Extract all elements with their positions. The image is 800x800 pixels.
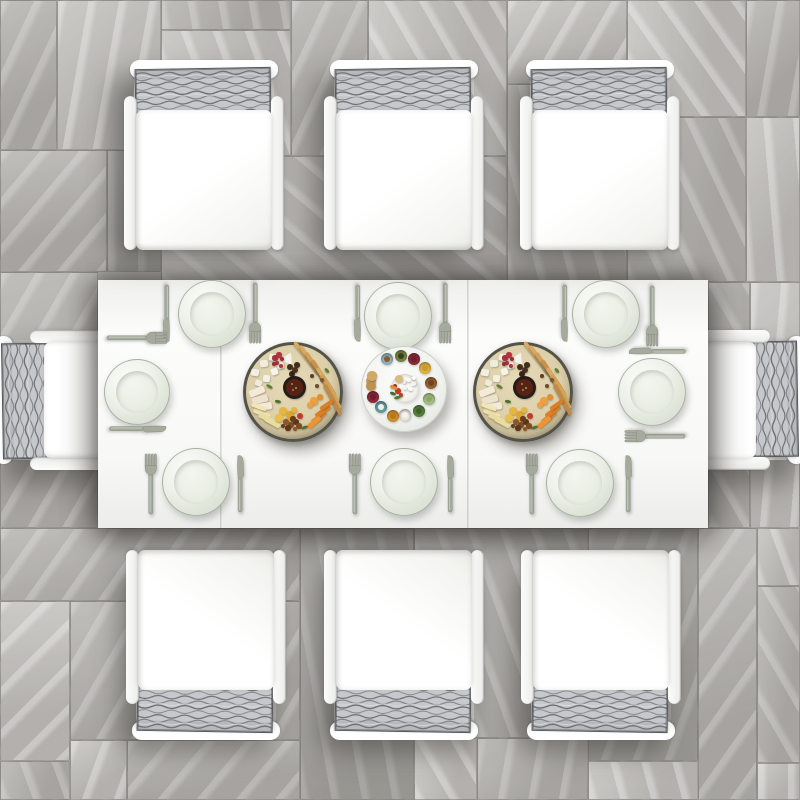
board-food-item bbox=[293, 427, 298, 432]
board-food-item bbox=[290, 416, 295, 421]
board-food-item bbox=[495, 383, 503, 389]
snack-bowl bbox=[419, 362, 432, 375]
board-food-item bbox=[272, 362, 276, 366]
knife bbox=[623, 453, 634, 515]
dinner-plate bbox=[546, 449, 614, 517]
dinner-plate bbox=[370, 448, 438, 516]
snack-bowl bbox=[413, 405, 426, 418]
seat-cushion bbox=[533, 550, 669, 690]
floor-tile bbox=[0, 601, 70, 761]
woven-texture bbox=[336, 683, 471, 732]
armrest-right bbox=[668, 550, 681, 704]
platter-food-item bbox=[366, 381, 376, 391]
board-food-item bbox=[502, 362, 506, 366]
floor-tile bbox=[127, 740, 300, 800]
board-food-item bbox=[537, 402, 543, 408]
snack-bowl bbox=[387, 410, 400, 423]
dinner-plate bbox=[162, 448, 230, 516]
floor-tile bbox=[588, 761, 698, 800]
board-food-item bbox=[540, 374, 544, 378]
seat-cushion bbox=[136, 110, 272, 250]
seat-cushion bbox=[138, 550, 274, 690]
board-food-item bbox=[520, 416, 525, 421]
board-food-item bbox=[250, 368, 259, 376]
floor-tile bbox=[477, 738, 588, 800]
armrest-right bbox=[271, 96, 284, 250]
armrest-right bbox=[273, 550, 286, 704]
snack-bowl bbox=[423, 393, 436, 406]
dish-food-item bbox=[407, 386, 413, 392]
board-food-item bbox=[523, 427, 528, 432]
board-food-item bbox=[285, 425, 290, 430]
fork bbox=[645, 285, 659, 347]
dinner-plate bbox=[364, 282, 432, 350]
floor-tile bbox=[757, 763, 800, 800]
woven-texture bbox=[138, 683, 273, 732]
board-food-item bbox=[275, 399, 281, 403]
dish-food-item bbox=[395, 375, 403, 383]
floor-tile bbox=[0, 150, 107, 272]
snack-bowl bbox=[381, 353, 394, 366]
board-food-item bbox=[550, 378, 554, 382]
board-food-item bbox=[524, 362, 530, 368]
fork bbox=[525, 453, 539, 515]
board-food-item bbox=[265, 383, 273, 389]
seat-cushion bbox=[532, 110, 668, 250]
board-food-item bbox=[275, 414, 282, 421]
seat-cushion bbox=[336, 110, 472, 250]
board-food-item bbox=[515, 425, 520, 430]
board-food-item bbox=[492, 374, 499, 381]
board-food-item bbox=[505, 399, 511, 403]
floor-tile bbox=[414, 738, 477, 800]
board-food-item bbox=[545, 384, 549, 388]
fork bbox=[624, 429, 686, 443]
board-food-item bbox=[307, 402, 313, 408]
board-food-item bbox=[522, 389, 524, 391]
dish-food-item bbox=[410, 382, 416, 387]
board-food-item bbox=[490, 359, 499, 367]
board-food-item bbox=[260, 359, 269, 367]
board-food-item bbox=[297, 413, 303, 419]
floor-tile bbox=[757, 586, 800, 763]
board-food-item bbox=[292, 389, 294, 391]
floor-tile bbox=[698, 528, 757, 800]
fork bbox=[106, 331, 168, 345]
seat-cushion bbox=[336, 550, 472, 690]
board-food-item bbox=[270, 367, 279, 376]
dish-food-item bbox=[403, 386, 408, 391]
snack-bowl bbox=[408, 353, 421, 366]
board-food-item bbox=[500, 367, 509, 376]
woven-texture bbox=[749, 342, 798, 457]
snack-bowl bbox=[395, 350, 408, 363]
table-seam bbox=[467, 280, 469, 528]
floor-tile bbox=[0, 0, 57, 150]
board-food-item bbox=[315, 384, 319, 388]
snack-bowl bbox=[425, 377, 438, 390]
board-food-item bbox=[317, 394, 324, 401]
knife bbox=[106, 424, 168, 435]
outdoor-dining-set-photo bbox=[0, 0, 800, 800]
floor-tile bbox=[161, 0, 291, 30]
board-food-item bbox=[554, 367, 560, 374]
knife bbox=[445, 453, 456, 515]
armrest-right bbox=[471, 96, 484, 250]
board-food-item bbox=[547, 394, 554, 401]
dining-chair-bottom-2 bbox=[324, 548, 484, 740]
charcuterie-board bbox=[473, 342, 573, 442]
dining-chair-top-3 bbox=[520, 60, 680, 252]
knife bbox=[559, 282, 570, 344]
board-food-item bbox=[310, 374, 314, 378]
board-food-item bbox=[505, 414, 512, 421]
floor-tile bbox=[70, 740, 127, 800]
fork bbox=[248, 282, 262, 344]
floor-tile bbox=[746, 117, 800, 282]
dining-chair-top-1 bbox=[124, 60, 284, 252]
center-dish bbox=[391, 374, 419, 402]
dinner-plate bbox=[618, 358, 686, 426]
woven-texture bbox=[533, 683, 668, 732]
dinner-plate bbox=[104, 359, 170, 425]
board-food-item bbox=[291, 407, 297, 413]
board-food-item bbox=[262, 374, 269, 381]
dinner-plate bbox=[178, 280, 246, 348]
board-food-item bbox=[294, 362, 300, 368]
fork bbox=[144, 453, 158, 515]
fork bbox=[348, 453, 362, 515]
snack-bowl bbox=[375, 401, 388, 414]
charcuterie-board bbox=[243, 342, 343, 442]
knife bbox=[626, 346, 688, 357]
fork bbox=[438, 282, 452, 344]
dish-food-item bbox=[411, 375, 416, 380]
snack-bowl bbox=[399, 409, 412, 422]
board-food-item bbox=[480, 368, 489, 376]
platter-food-item bbox=[367, 371, 376, 380]
board-food-item bbox=[521, 407, 527, 413]
board-food-item bbox=[324, 367, 330, 374]
floor-tile bbox=[0, 761, 70, 800]
knife bbox=[352, 282, 363, 344]
board-food-item bbox=[527, 413, 533, 419]
armrest-right bbox=[471, 550, 484, 704]
dinner-plate bbox=[572, 280, 640, 348]
snack-platter bbox=[361, 346, 447, 432]
floor-tile bbox=[746, 0, 800, 117]
board-food-item bbox=[320, 378, 324, 382]
armrest-right bbox=[667, 96, 680, 250]
dining-chair-bottom-1 bbox=[126, 548, 286, 740]
dining-chair-top-2 bbox=[324, 60, 484, 252]
floor-tile bbox=[757, 528, 800, 586]
dining-chair-bottom-3 bbox=[521, 548, 681, 740]
knife bbox=[235, 453, 246, 515]
